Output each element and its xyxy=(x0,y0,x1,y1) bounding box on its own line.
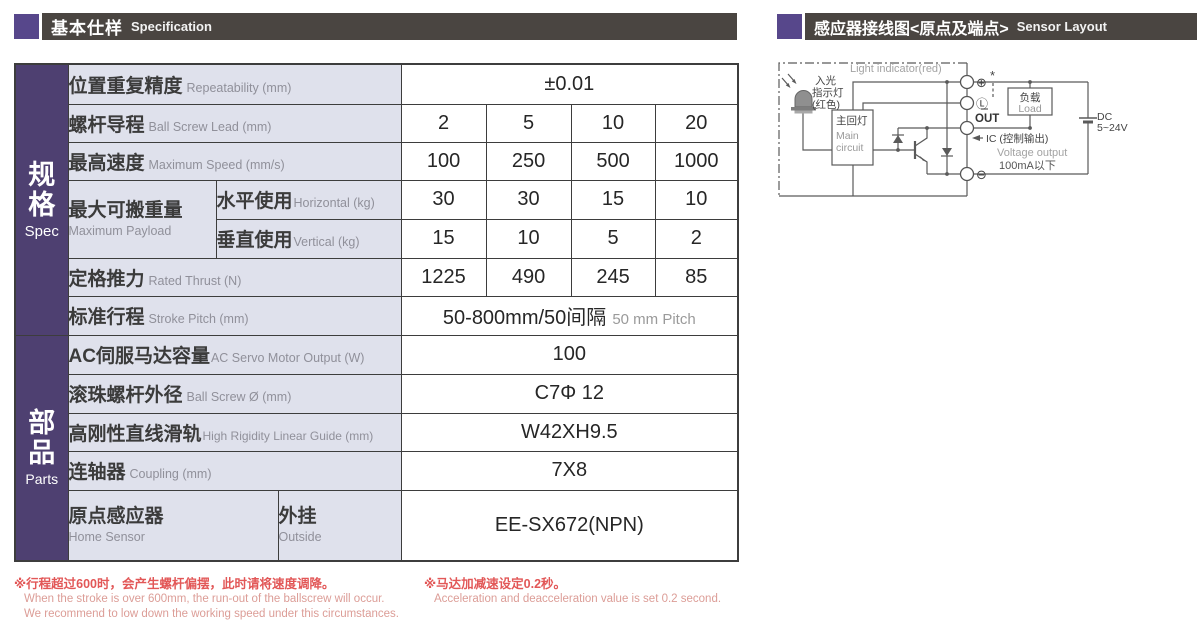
note-en: We recommend to low down the working spe… xyxy=(24,607,399,622)
left-header-title-en: Specification xyxy=(131,19,212,34)
row-repeatability: 规 格 Spec 位置重复精度Repeatability (mm) ±0.01 xyxy=(15,64,738,104)
value-cell: 5 xyxy=(571,219,655,258)
row-home-sensor: 原点感应器 Home Sensor 外挂 Outside EE-SX672(NP… xyxy=(15,490,738,561)
left-section-header: 基本仕样 Specification xyxy=(14,13,737,40)
note-en: When the stroke is over 600mm, the run-o… xyxy=(24,592,399,607)
label-max-speed: 最高速度Maximum Speed (mm/s) xyxy=(68,142,401,180)
voltage-output-label: Voltage output xyxy=(997,147,1067,159)
value-cell: 1225 xyxy=(401,258,486,296)
value-cell: 245 xyxy=(571,258,655,296)
value-cell: EE-SX672(NPN) xyxy=(401,490,738,561)
label-home-sensor: 原点感应器 Home Sensor xyxy=(68,490,278,561)
label-servo-output: AC伺服马达容量AC Servo Motor Output (W) xyxy=(68,335,401,374)
zener2-icon xyxy=(942,148,952,156)
zener1-icon xyxy=(893,135,903,143)
note-zh: ※行程超过600时，会产生螺杆偏摆，此时请将速度调降。 xyxy=(14,576,399,592)
row-payload-horizontal: 最大可搬重量 Maximum Payload 水平使用Horizontal (k… xyxy=(15,180,738,219)
right-header-bar: 感应器接线图<原点及端点> Sensor Layout xyxy=(805,13,1197,40)
purple-square-icon xyxy=(14,14,39,39)
terminal-l-circle xyxy=(961,97,974,110)
label-rated-thrust: 定格推力Rated Thrust (N) xyxy=(68,258,401,296)
current-note-label: 100mA以下 xyxy=(999,160,1056,172)
value-cell: 30 xyxy=(401,180,486,219)
value-cell: 10 xyxy=(486,219,571,258)
sidebar-parts-en: Parts xyxy=(16,471,68,487)
sidebar-spec-zh: 规 格 xyxy=(16,160,68,220)
right-header-title-en: Sensor Layout xyxy=(1017,19,1107,34)
value-cell: 2 xyxy=(401,104,486,142)
left-header-title-zh: 基本仕样 xyxy=(51,14,123,39)
row-coupling: 连轴器Coupling (mm) 7X8 xyxy=(15,451,738,490)
label-vertical: 垂直使用Vertical (kg) xyxy=(216,219,401,258)
row-linear-guide: 高刚性直线滑轨High Rigidity Linear Guide (mm) W… xyxy=(15,413,738,451)
sidebar-parts-zh: 部 品 xyxy=(16,408,68,468)
right-section-header: 感应器接线图<原点及端点> Sensor Layout xyxy=(777,13,1197,40)
label-horizontal: 水平使用Horizontal (kg) xyxy=(216,180,401,219)
spec-sheet-page: 基本仕样 Specification 感应器接线图<原点及端点> Sensor … xyxy=(0,0,1200,632)
terminal-l-label: Ⓛ xyxy=(976,97,988,111)
svg-text:入光: 入光 xyxy=(815,74,836,87)
note-zh: ※马达加减速设定0.2秒。 xyxy=(424,576,721,592)
value-cell: 100 xyxy=(401,335,738,374)
value-cell: 10 xyxy=(655,180,738,219)
label-ball-screw-lead: 螺杆导程Ball Screw Lead (mm) xyxy=(68,104,401,142)
note-en: Acceleration and deacceleration value is… xyxy=(434,592,721,607)
sensor-wiring-diagram: Light indicator(red) 入光 指示灯 (红色) 主回灯 Mai… xyxy=(775,50,1200,215)
right-header-title-zh: 感应器接线图<原点及端点> xyxy=(814,15,1009,39)
value-cell: 20 xyxy=(655,104,738,142)
value-cell: 490 xyxy=(486,258,571,296)
row-rated-thrust: 定格推力Rated Thrust (N) 1225 490 245 85 xyxy=(15,258,738,296)
value-cell: 500 xyxy=(571,142,655,180)
value-cell: 15 xyxy=(571,180,655,219)
terminal-plus-label: ⊕ xyxy=(976,75,987,90)
row-servo-output: 部 品 Parts AC伺服马达容量AC Servo Motor Output … xyxy=(15,335,738,374)
asterisk: * xyxy=(990,68,995,83)
value-cell: 50-800mm/50间隔50 mm Pitch xyxy=(401,296,738,335)
value-cell: 5 xyxy=(486,104,571,142)
spec-table: 规 格 Spec 位置重复精度Repeatability (mm) ±0.01 … xyxy=(14,63,739,562)
terminal-out-label: OUT xyxy=(975,113,999,125)
value-cell: 7X8 xyxy=(401,451,738,490)
led-icon xyxy=(782,74,816,114)
value-cell: 85 xyxy=(655,258,738,296)
value-cell: 10 xyxy=(571,104,655,142)
wire-l xyxy=(863,103,967,110)
terminal-minus-label: ⊖ xyxy=(976,167,987,182)
note-stroke-warning: ※行程超过600时，会产生螺杆偏摆，此时请将速度调降。 When the str… xyxy=(14,576,399,622)
ic-arrow-head xyxy=(972,135,980,141)
value-cell: ±0.01 xyxy=(401,64,738,104)
ic-label: IC (控制输出) xyxy=(986,132,1048,145)
light-indicator-label: Light indicator(red) xyxy=(850,63,942,75)
svg-text:指示灯: 指示灯 xyxy=(812,86,844,99)
sidebar-spec-en: Spec xyxy=(16,223,68,240)
value-cell: 2 xyxy=(655,219,738,258)
row-stroke-pitch: 标准行程Stroke Pitch (mm) 50-800mm/50间隔50 mm… xyxy=(15,296,738,335)
value-cell: 15 xyxy=(401,219,486,258)
label-coupling: 连轴器Coupling (mm) xyxy=(68,451,401,490)
label-linear-guide: 高刚性直线滑轨High Rigidity Linear Guide (mm) xyxy=(68,413,401,451)
sidebar-spec: 规 格 Spec xyxy=(15,64,68,335)
value-cell: 1000 xyxy=(655,142,738,180)
label-ball-screw-dia: 滚珠螺杆外径Ball Screw Ø (mm) xyxy=(68,374,401,413)
load-en: Load xyxy=(1018,103,1042,115)
row-ball-screw-dia: 滚珠螺杆外径Ball Screw Ø (mm) C7Φ 12 xyxy=(15,374,738,413)
value-cell: 250 xyxy=(486,142,571,180)
value-cell: 100 xyxy=(401,142,486,180)
svg-text:(红色): (红色) xyxy=(812,98,840,111)
label-max-payload: 最大可搬重量 Maximum Payload xyxy=(68,180,216,258)
value-cell: W42XH9.5 xyxy=(401,413,738,451)
purple-square-icon xyxy=(777,14,802,39)
svg-text:circuit: circuit xyxy=(836,142,864,154)
svg-text:5~24V: 5~24V xyxy=(1097,122,1128,134)
label-repeatability: 位置重复精度Repeatability (mm) xyxy=(68,64,401,104)
value-cell: C7Φ 12 xyxy=(401,374,738,413)
row-ball-screw-lead: 螺杆导程Ball Screw Lead (mm) 2 5 10 20 xyxy=(15,104,738,142)
terminal-plus-circle xyxy=(961,76,974,89)
value-cell: 30 xyxy=(486,180,571,219)
terminal-out-circle xyxy=(961,122,974,135)
note-acceleration: ※马达加减速设定0.2秒。 Acceleration and deacceler… xyxy=(424,576,721,607)
left-header-bar: 基本仕样 Specification xyxy=(42,13,737,40)
main-circuit-zh: 主回灯 xyxy=(836,115,868,127)
terminal-minus-circle xyxy=(961,168,974,181)
label-home-sensor-outside: 外挂 Outside xyxy=(278,490,401,561)
row-max-speed: 最高速度Maximum Speed (mm/s) 100 250 500 100… xyxy=(15,142,738,180)
wire-led xyxy=(803,112,832,150)
svg-text:Main: Main xyxy=(836,130,859,142)
label-stroke-pitch: 标准行程Stroke Pitch (mm) xyxy=(68,296,401,335)
sidebar-parts: 部 品 Parts xyxy=(15,335,68,561)
